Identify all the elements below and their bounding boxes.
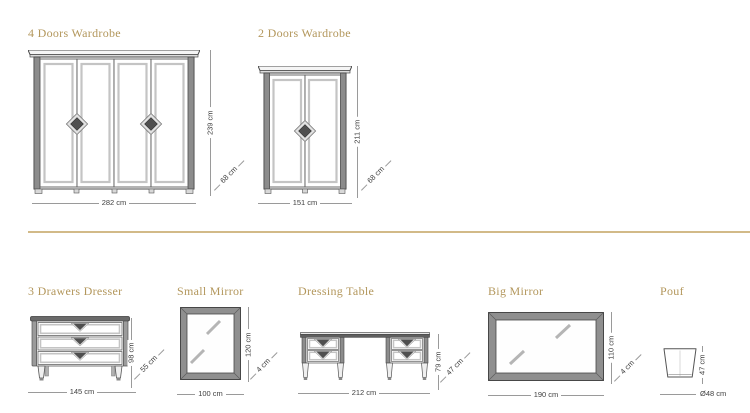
width-dimension: 100 cm [177,389,244,399]
dimension-tick [134,373,140,379]
dimension-tick [271,352,277,358]
height-dimension-label: 239 cm [206,108,214,139]
dimension-line [660,394,696,395]
dimension-tick [238,160,244,166]
height-dimension-label: 211 cm [353,117,361,147]
height-dimension: 47 cm [697,346,707,384]
product-title: Pouf [660,284,684,299]
height-dimension: 239 cm [205,50,215,196]
product-title: Small Mirror [177,284,244,299]
dresser-drawing [30,316,130,382]
depth-dimension-label: 4 cm [253,355,274,376]
width-dimension-label: 100 cm [195,390,226,398]
section-divider [28,231,750,233]
drawer [38,337,122,350]
dimension-tick [214,184,220,190]
depth-dimension-label: 68 cm [217,163,241,187]
product-4-doors-wardrobe: 4 Doors Wardrobe [28,22,278,217]
width-dimension: Ø48 cm [660,389,726,399]
dimension-tick [385,160,391,166]
small-mirror-drawing [180,307,241,380]
product-title: 3 Drawers Dresser [28,284,122,299]
product-title: Dressing Table [298,284,374,299]
width-dimension: 190 cm [488,390,604,400]
width-dimension-label: 145 cm [67,388,98,396]
height-dimension-label: 79 cm [434,349,442,375]
dimension-tick [614,375,620,381]
product-title: Big Mirror [488,284,543,299]
pouf-drawing [663,348,697,380]
width-dimension-label: 151 cm [290,199,321,207]
furniture-spec-page: 4 Doors Wardrobe [0,0,750,413]
product-3-drawers-dresser: 3 Drawers Dresser [28,282,178,407]
depth-dimension-label: 47 cm [443,355,467,379]
product-title: 4 Doors Wardrobe [28,26,121,41]
width-dimension: 282 cm [32,198,196,208]
width-dimension-label: Ø48 cm [696,390,726,398]
depth-dimension: 68 cm [210,156,247,193]
width-dimension-label: 212 cm [349,389,380,397]
height-dimension-label: 120 cm [244,329,252,360]
depth-dimension: 68 cm [357,156,394,193]
width-dimension: 212 cm [298,388,430,398]
big-mirror-drawing [488,312,604,381]
wardrobe-2-doors-drawing [258,66,352,196]
dimension-tick [440,376,446,382]
product-title: 2 Doors Wardrobe [258,26,351,41]
dimension-tick [464,352,470,358]
dimension-tick [250,373,256,379]
width-dimension-label: 282 cm [99,199,130,207]
drawer [38,352,122,365]
depth-dimension-label: 4 cm [617,357,638,378]
height-dimension: 211 cm [352,66,362,198]
depth-dimension-label: 68 cm [364,163,388,187]
depth-dimension-label: 55 cm [137,352,161,376]
height-dimension-label: 98 cm [127,340,135,366]
product-big-mirror: Big Mirror 190 cm 110 cm 4 cm [488,282,638,407]
dimension-tick [635,354,641,360]
height-dimension-label: 47 cm [698,352,706,378]
dimension-tick [361,184,367,190]
dressing-table-drawing [300,332,430,382]
dimension-tick [158,349,164,355]
width-dimension-label: 190 cm [531,391,562,399]
product-2-doors-wardrobe: 2 Doors Wardrobe 151 cm 211 cm [256,22,426,217]
width-dimension: 145 cm [28,387,136,397]
depth-dimension: 55 cm [130,345,167,382]
product-pouf: Pouf Ø48 cm 47 cm [655,282,750,407]
product-dressing-table: Dressing Table [298,282,468,407]
height-dimension-label: 110 cm [607,333,615,363]
width-dimension: 151 cm [258,198,352,208]
wardrobe-4-doors-drawing [28,50,200,196]
drawer [38,323,122,336]
product-small-mirror: Small Mirror 100 cm 120 cm 4 cm [177,282,292,407]
